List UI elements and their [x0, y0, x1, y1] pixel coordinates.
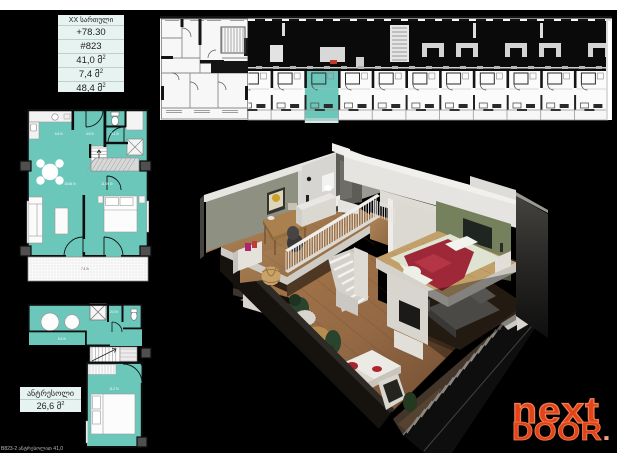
svg-text:11.09 მ²: 11.09 მ² [101, 182, 112, 186]
svg-text:4.6 მ²: 4.6 მ² [86, 132, 94, 136]
svg-text:6.6 მ²: 6.6 მ² [55, 132, 63, 136]
svg-text:8.6 მ²: 8.6 მ² [58, 337, 66, 341]
svg-text:11.2 მ²: 11.2 მ² [109, 387, 119, 391]
svg-text:7.4 მ²: 7.4 მ² [81, 267, 89, 271]
svg-text:3.1 მ²: 3.1 მ² [111, 132, 119, 136]
svg-text:15.64 მ²: 15.64 მ² [64, 182, 76, 186]
svg-text:2.0 მ²: 2.0 მ² [110, 310, 118, 314]
